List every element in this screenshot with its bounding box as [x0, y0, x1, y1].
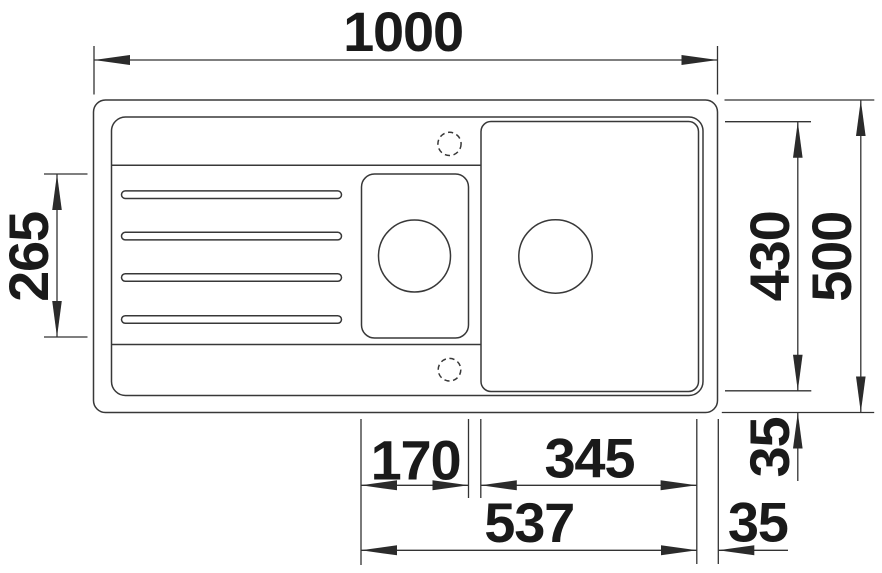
svg-text:35: 35	[738, 418, 801, 478]
svg-text:537: 537	[484, 491, 574, 554]
svg-text:265: 265	[0, 212, 60, 302]
svg-text:345: 345	[544, 426, 634, 489]
svg-text:170: 170	[371, 428, 461, 491]
svg-text:35: 35	[728, 490, 788, 553]
svg-text:500: 500	[800, 212, 863, 302]
svg-text:1000: 1000	[343, 0, 463, 63]
svg-text:430: 430	[738, 211, 801, 301]
